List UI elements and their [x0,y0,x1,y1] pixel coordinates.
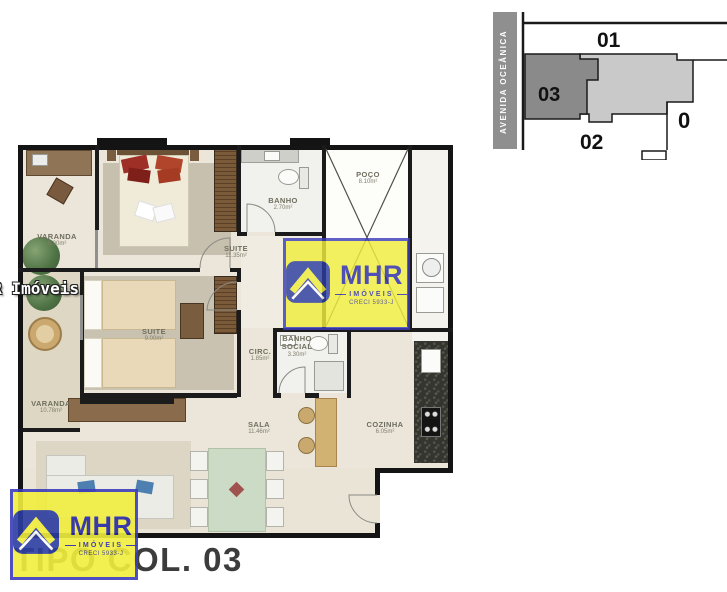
divider-line [65,545,76,546]
room-label-cozinha: COZINHA 6.05m² [356,421,414,436]
brand-name: MHR [70,513,133,540]
pillar [290,138,330,145]
unit-04-partial-label: 0 [678,108,690,133]
dresser-symbol [180,303,204,339]
sliding-door-glass [80,295,83,340]
single-bed-symbol [102,338,176,388]
mhr-logo-center: MHR IMÓVEIS CRECI 5933-J [283,238,410,330]
room-label-banho-social: BANHO SOCIAL 3.30m² [276,335,318,358]
room-area: 9.00m² [126,336,182,343]
bar-stool-symbol [298,407,315,424]
wall-segment [237,145,241,236]
avenue-label: AVENIDA OCEÂNICA [499,30,508,134]
pillow-symbol [84,280,102,330]
wall-segment [95,145,99,230]
laptop-symbol [32,154,48,166]
wall-segment [347,328,351,398]
wall-segment [305,393,319,398]
edge-watermark: MHR Imóveis [0,279,79,298]
room-area: 8.10m² [340,179,396,186]
room-label-suite-1: SUITE 11.35m² [210,245,262,260]
room-area: 11.46m² [234,429,284,436]
room-area: 6.05m² [356,429,414,436]
brand-creci: CRECI 5933-J [349,300,394,306]
mhr-logo-bottom: MHR IMÓVEIS CRECI 5933-J [10,489,138,580]
room-area: 2.70m² [260,205,306,212]
wall-segment [23,428,80,432]
room-name: SUITE [126,328,182,336]
room-label-suite-2: SUITE 9.00m² [126,328,182,343]
wall-segment [18,145,23,538]
nightstand-symbol [107,149,116,161]
listing-image: AVENIDA OCEÂNICA 01 03 02 0 [0,0,727,592]
washer-drum-icon [422,258,441,277]
site-plan-drawing: AVENIDA OCEÂNICA 01 03 02 0 [490,10,727,160]
mhr-logo-icon [285,260,331,309]
dining-chair-symbol [190,479,208,499]
armchair-cushion [36,325,54,343]
room-area: 1.85m² [240,356,280,363]
dining-chair-symbol [190,507,208,527]
room-name: POÇO [340,171,396,179]
unit-03-label: 03 [538,84,560,106]
brand-name: MHR [340,262,403,289]
room-label-banho: BANHO 2.70m² [260,197,306,212]
mhr-logo-icon [11,509,61,560]
room-label-sala: SALA 11.46m² [234,421,284,436]
room-label-varanda-top: VARANDA 6.00m² [26,233,88,248]
pillar [97,138,167,145]
wall-segment [80,393,237,398]
wardrobe-symbol [214,276,237,334]
wall-segment [237,232,247,236]
wall-segment [375,468,453,473]
bar-counter [315,398,337,467]
room-name: BANHO SOCIAL [276,335,318,352]
dining-chair-symbol [266,507,284,527]
brand-subtitle: IMÓVEIS [349,291,394,298]
brand-creci: CRECI 5933-J [79,551,124,557]
toilet-tank-symbol [299,167,309,189]
room-name: VARANDA [26,233,88,241]
wall-segment [273,393,281,398]
room-name: SUITE [210,245,262,253]
site-plan: AVENIDA OCEÂNICA 01 03 02 0 [490,10,727,160]
room-area: 3.30m² [276,352,318,359]
wall-segment [18,268,200,272]
toilet-symbol [278,169,299,185]
room-label-poco: POÇO 8.10m² [340,171,396,186]
wall-segment [375,523,380,538]
shower-symbol [314,361,344,391]
sink-symbol [264,151,280,161]
room-name: VARANDA [22,400,80,408]
divider-line [397,294,408,295]
room-name: CIRC. [240,348,280,356]
wall-segment [275,232,326,236]
divider-line [126,545,137,546]
room-name: SALA [234,421,284,429]
wall-segment [18,145,453,150]
stove-symbol [421,407,441,437]
room-name: BANHO [260,197,306,205]
nightstand-symbol [190,149,199,161]
brand-subtitle: IMÓVEIS [79,542,124,549]
room-area: 6.00m² [26,241,88,248]
laundry-sink-symbol [416,287,444,313]
room-label-circ: CIRC. 1.85m² [240,348,280,363]
room-label-varanda-bottom: VARANDA 10.78m² [22,400,80,415]
room-area: 10.78m² [22,408,80,415]
floor-plan: VARANDA 6.00m² SUITE 11.35m² BANHO 2.70m… [18,145,455,538]
wall-segment [237,272,241,282]
dining-chair-symbol [266,451,284,471]
single-bed-symbol [102,280,176,330]
toilet-tank-symbol [328,334,338,354]
unit-partial-shape [642,151,666,160]
wardrobe-symbol [214,147,237,232]
kitchen-sink-symbol [421,349,441,373]
wall-segment [448,145,453,473]
divider-line [335,294,346,295]
dining-chair-symbol [266,479,284,499]
unit-03-shape [525,54,598,119]
unit-02-label: 02 [580,131,603,154]
bar-stool-symbol [298,437,315,454]
wall-segment [375,468,380,495]
dining-chair-symbol [190,451,208,471]
pillow-symbol [84,338,102,388]
room-name: COZINHA [356,421,414,429]
sliding-door-glass [95,230,98,268]
room-area: 11.35m² [210,253,262,260]
unit-01-label: 01 [597,29,621,52]
